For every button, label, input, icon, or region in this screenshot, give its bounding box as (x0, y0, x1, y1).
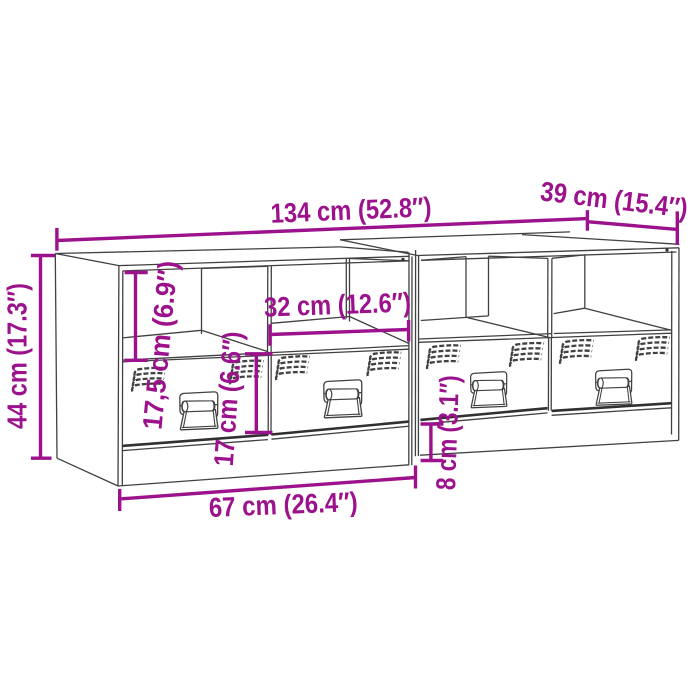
svg-text:8 cm (3.1″): 8 cm (3.1″) (431, 375, 466, 491)
svg-text:67 cm (26.4″): 67 cm (26.4″) (208, 488, 358, 524)
svg-text:44 cm (17.3″): 44 cm (17.3″) (3, 283, 33, 429)
svg-text:32 cm (12.6″): 32 cm (12.6″) (264, 288, 412, 323)
